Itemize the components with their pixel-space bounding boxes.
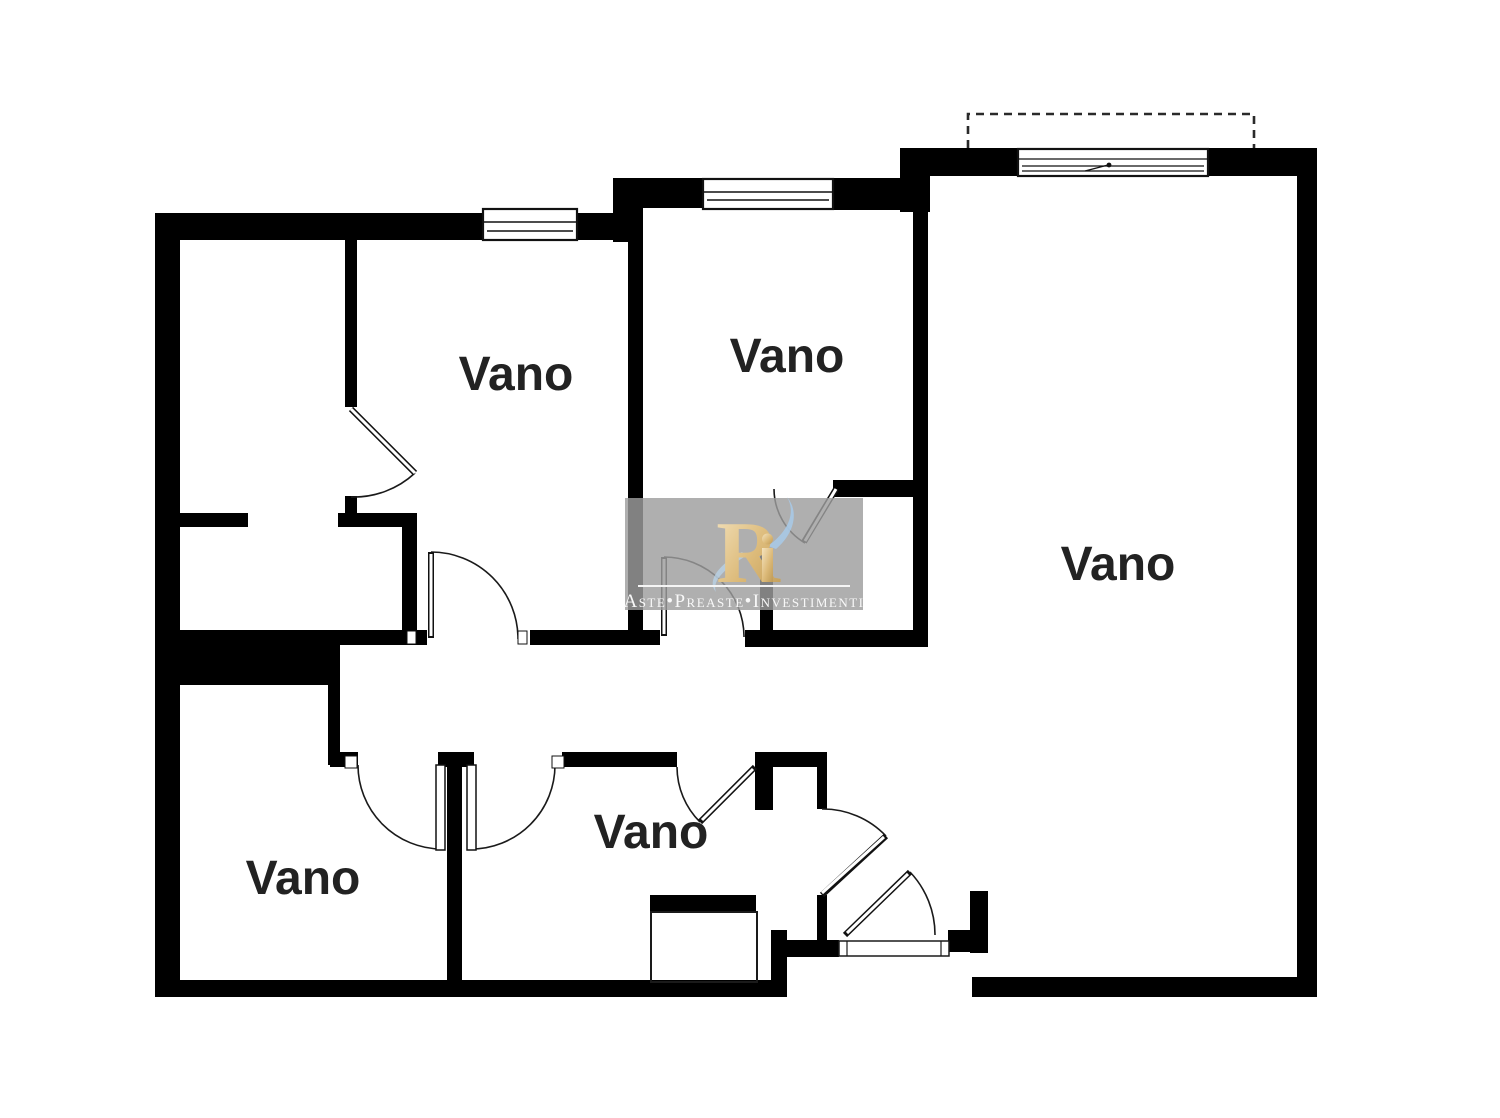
window-top-left bbox=[483, 209, 577, 240]
room-label-top-left: Vano bbox=[459, 348, 574, 401]
wall bbox=[773, 752, 827, 767]
wall bbox=[773, 940, 839, 957]
wall bbox=[970, 891, 988, 953]
watermark-tagline: Aste•Preaste•Investimenti bbox=[623, 591, 864, 612]
watermark-logo-i-bar bbox=[762, 548, 773, 582]
wall bbox=[402, 520, 417, 645]
wall bbox=[155, 213, 483, 240]
wall bbox=[163, 630, 340, 685]
entry-threshold bbox=[839, 941, 949, 956]
door bbox=[822, 809, 886, 895]
wall bbox=[447, 767, 462, 980]
closet-outline bbox=[651, 912, 757, 982]
door bbox=[345, 756, 445, 850]
wall bbox=[930, 148, 1018, 176]
wall bbox=[755, 752, 773, 810]
floor-plan-svg: R Aste•Preaste•Investimenti Vano Vano Va… bbox=[0, 0, 1500, 1118]
wall bbox=[330, 630, 408, 645]
room-label-right: Vano bbox=[1061, 538, 1176, 591]
wall bbox=[833, 480, 928, 497]
wall bbox=[415, 630, 427, 645]
wall bbox=[1297, 148, 1317, 997]
watermark-logo-i-dot bbox=[762, 534, 773, 545]
balcony-dashed-outline bbox=[968, 114, 1254, 148]
wall bbox=[833, 178, 900, 210]
room-label-top-middle: Vano bbox=[730, 330, 845, 383]
wall bbox=[345, 240, 357, 407]
door bbox=[351, 409, 415, 497]
wall bbox=[643, 178, 703, 208]
wall bbox=[817, 767, 827, 809]
watermark: R Aste•Preaste•Investimenti bbox=[623, 497, 864, 612]
wall bbox=[650, 895, 756, 912]
wall bbox=[155, 213, 180, 997]
door bbox=[845, 872, 935, 935]
wall bbox=[562, 752, 677, 767]
door bbox=[467, 756, 564, 850]
wall bbox=[913, 177, 928, 647]
window-top-right bbox=[1018, 149, 1208, 176]
room-label-bottom-left: Vano bbox=[246, 852, 361, 905]
window-top-middle bbox=[703, 179, 833, 209]
wall bbox=[177, 513, 248, 527]
room-label-bottom-middle: Vano bbox=[594, 806, 709, 859]
wall bbox=[972, 977, 1317, 997]
floor-plan-page: R Aste•Preaste•Investimenti Vano Vano Va… bbox=[0, 0, 1500, 1118]
wall bbox=[817, 895, 827, 942]
room-labels: Vano Vano Vano Vano Vano bbox=[246, 330, 1176, 905]
